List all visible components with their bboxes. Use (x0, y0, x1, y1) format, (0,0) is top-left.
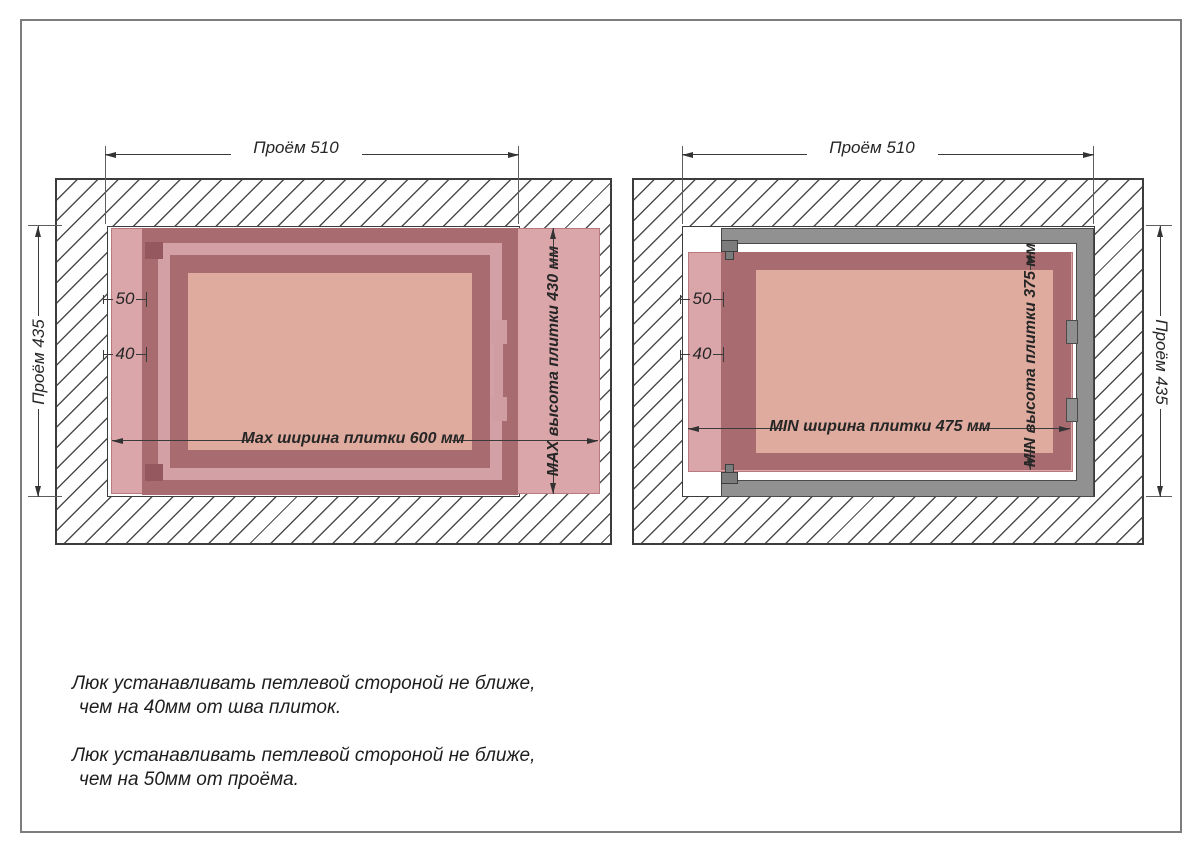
left-dim-tick (146, 347, 147, 362)
left-door-panel (188, 273, 472, 450)
right-hinge-bottom-icon (721, 472, 738, 484)
left-hinge-top-icon (145, 242, 163, 259)
right-dim-line (1160, 226, 1161, 316)
arrow-left-icon (105, 152, 116, 158)
left-hinge-offset-40-label: 40 (116, 344, 135, 364)
right-latch-tab-bottom (1066, 398, 1078, 422)
right-latch-tab-top (1066, 320, 1078, 344)
left-ext-line (28, 225, 62, 226)
note-line: Люк устанавливать петлевой стороной не б… (72, 672, 535, 696)
right-dim-line (1160, 409, 1161, 497)
left-dim-line (103, 299, 113, 300)
right-tile-height-label: MIN высота плитки 375 мм (1022, 243, 1040, 467)
right-dim-tick (723, 292, 724, 307)
right-dim-line (680, 299, 690, 300)
arrow-down-icon (1157, 486, 1163, 497)
left-hinge-offset-50-label: 50 (116, 289, 135, 309)
left-dim-tick (103, 295, 104, 304)
right-opening-width-label: Проём 510 (829, 138, 914, 158)
left-dim-line (103, 354, 113, 355)
arrow-up-icon (550, 228, 556, 239)
arrow-right-icon (587, 438, 598, 444)
left-gap-band-top (158, 243, 502, 255)
left-dim-line (38, 409, 39, 497)
left-latch-bar (494, 342, 503, 399)
left-latch-tab-top (491, 320, 507, 344)
drawing-page: Проём 510 Проём 435 50 40 Мах ширина пли… (0, 0, 1200, 849)
right-hinge-bottom-pin-icon (725, 464, 734, 473)
right-dim-tick (680, 295, 681, 304)
left-ext-line (518, 146, 519, 224)
note-hinge-seam: Люк устанавливать петлевой стороной не б… (72, 672, 535, 720)
right-hinge-top-pin-icon (725, 251, 734, 260)
arrow-up-icon (1157, 226, 1163, 237)
right-dim-tick (723, 347, 724, 362)
arrow-right-icon (1083, 152, 1094, 158)
note-hinge-opening: Люк устанавливать петлевой стороной не б… (72, 744, 535, 792)
right-hinge-offset-40-label: 40 (693, 344, 712, 364)
note-line: Люк устанавливать петлевой стороной не б… (72, 744, 535, 768)
left-latch-tab-bottom (491, 397, 507, 421)
note-line: чем на 40мм от шва плиток. (72, 696, 535, 720)
arrow-right-icon (508, 152, 519, 158)
arrow-down-icon (550, 483, 556, 494)
right-dim-line (680, 354, 690, 355)
right-dim-line (682, 154, 807, 155)
left-frame-band-bottom (142, 480, 518, 495)
left-frame-band-right (502, 228, 518, 495)
note-line: чем на 50мм от проёма. (72, 768, 535, 792)
left-opening-height-label: Проём 435 (29, 319, 49, 404)
right-dim-line (938, 154, 1094, 155)
left-dim-line (105, 154, 231, 155)
arrow-up-icon (35, 226, 41, 237)
arrow-left-icon (682, 152, 693, 158)
left-dim-tick (146, 292, 147, 307)
left-ext-line (105, 146, 106, 224)
right-dim-tick (680, 350, 681, 359)
arrow-down-icon (35, 486, 41, 497)
left-gap-band-bottom (158, 468, 502, 480)
left-dim-line (38, 226, 39, 316)
left-frame-band-left (142, 228, 158, 495)
right-ext-line (1093, 146, 1094, 224)
left-ext-line (28, 496, 62, 497)
left-frame-band-top (142, 228, 518, 243)
left-gap-band-left (158, 243, 170, 480)
left-opening-width-label: Проём 510 (253, 138, 338, 158)
right-tile-width-label: MIN ширина плитки 475 мм (769, 418, 990, 436)
right-ext-line (682, 146, 683, 224)
left-dim-line (452, 440, 598, 441)
arrow-right-icon (1059, 426, 1070, 432)
left-tile-width-label: Мах ширина плитки 600 мм (241, 430, 464, 448)
left-dim-line (112, 440, 254, 441)
left-dim-line (362, 154, 519, 155)
arrow-left-icon (112, 438, 123, 444)
right-hinge-offset-50-label: 50 (693, 289, 712, 309)
arrow-left-icon (688, 426, 699, 432)
left-hinge-bottom-icon (145, 464, 163, 481)
left-dim-tick (103, 350, 104, 359)
left-tile-height-label: МАХ высота плитки 430 мм (545, 246, 563, 476)
right-opening-height-label: Проём 435 (1151, 319, 1171, 404)
